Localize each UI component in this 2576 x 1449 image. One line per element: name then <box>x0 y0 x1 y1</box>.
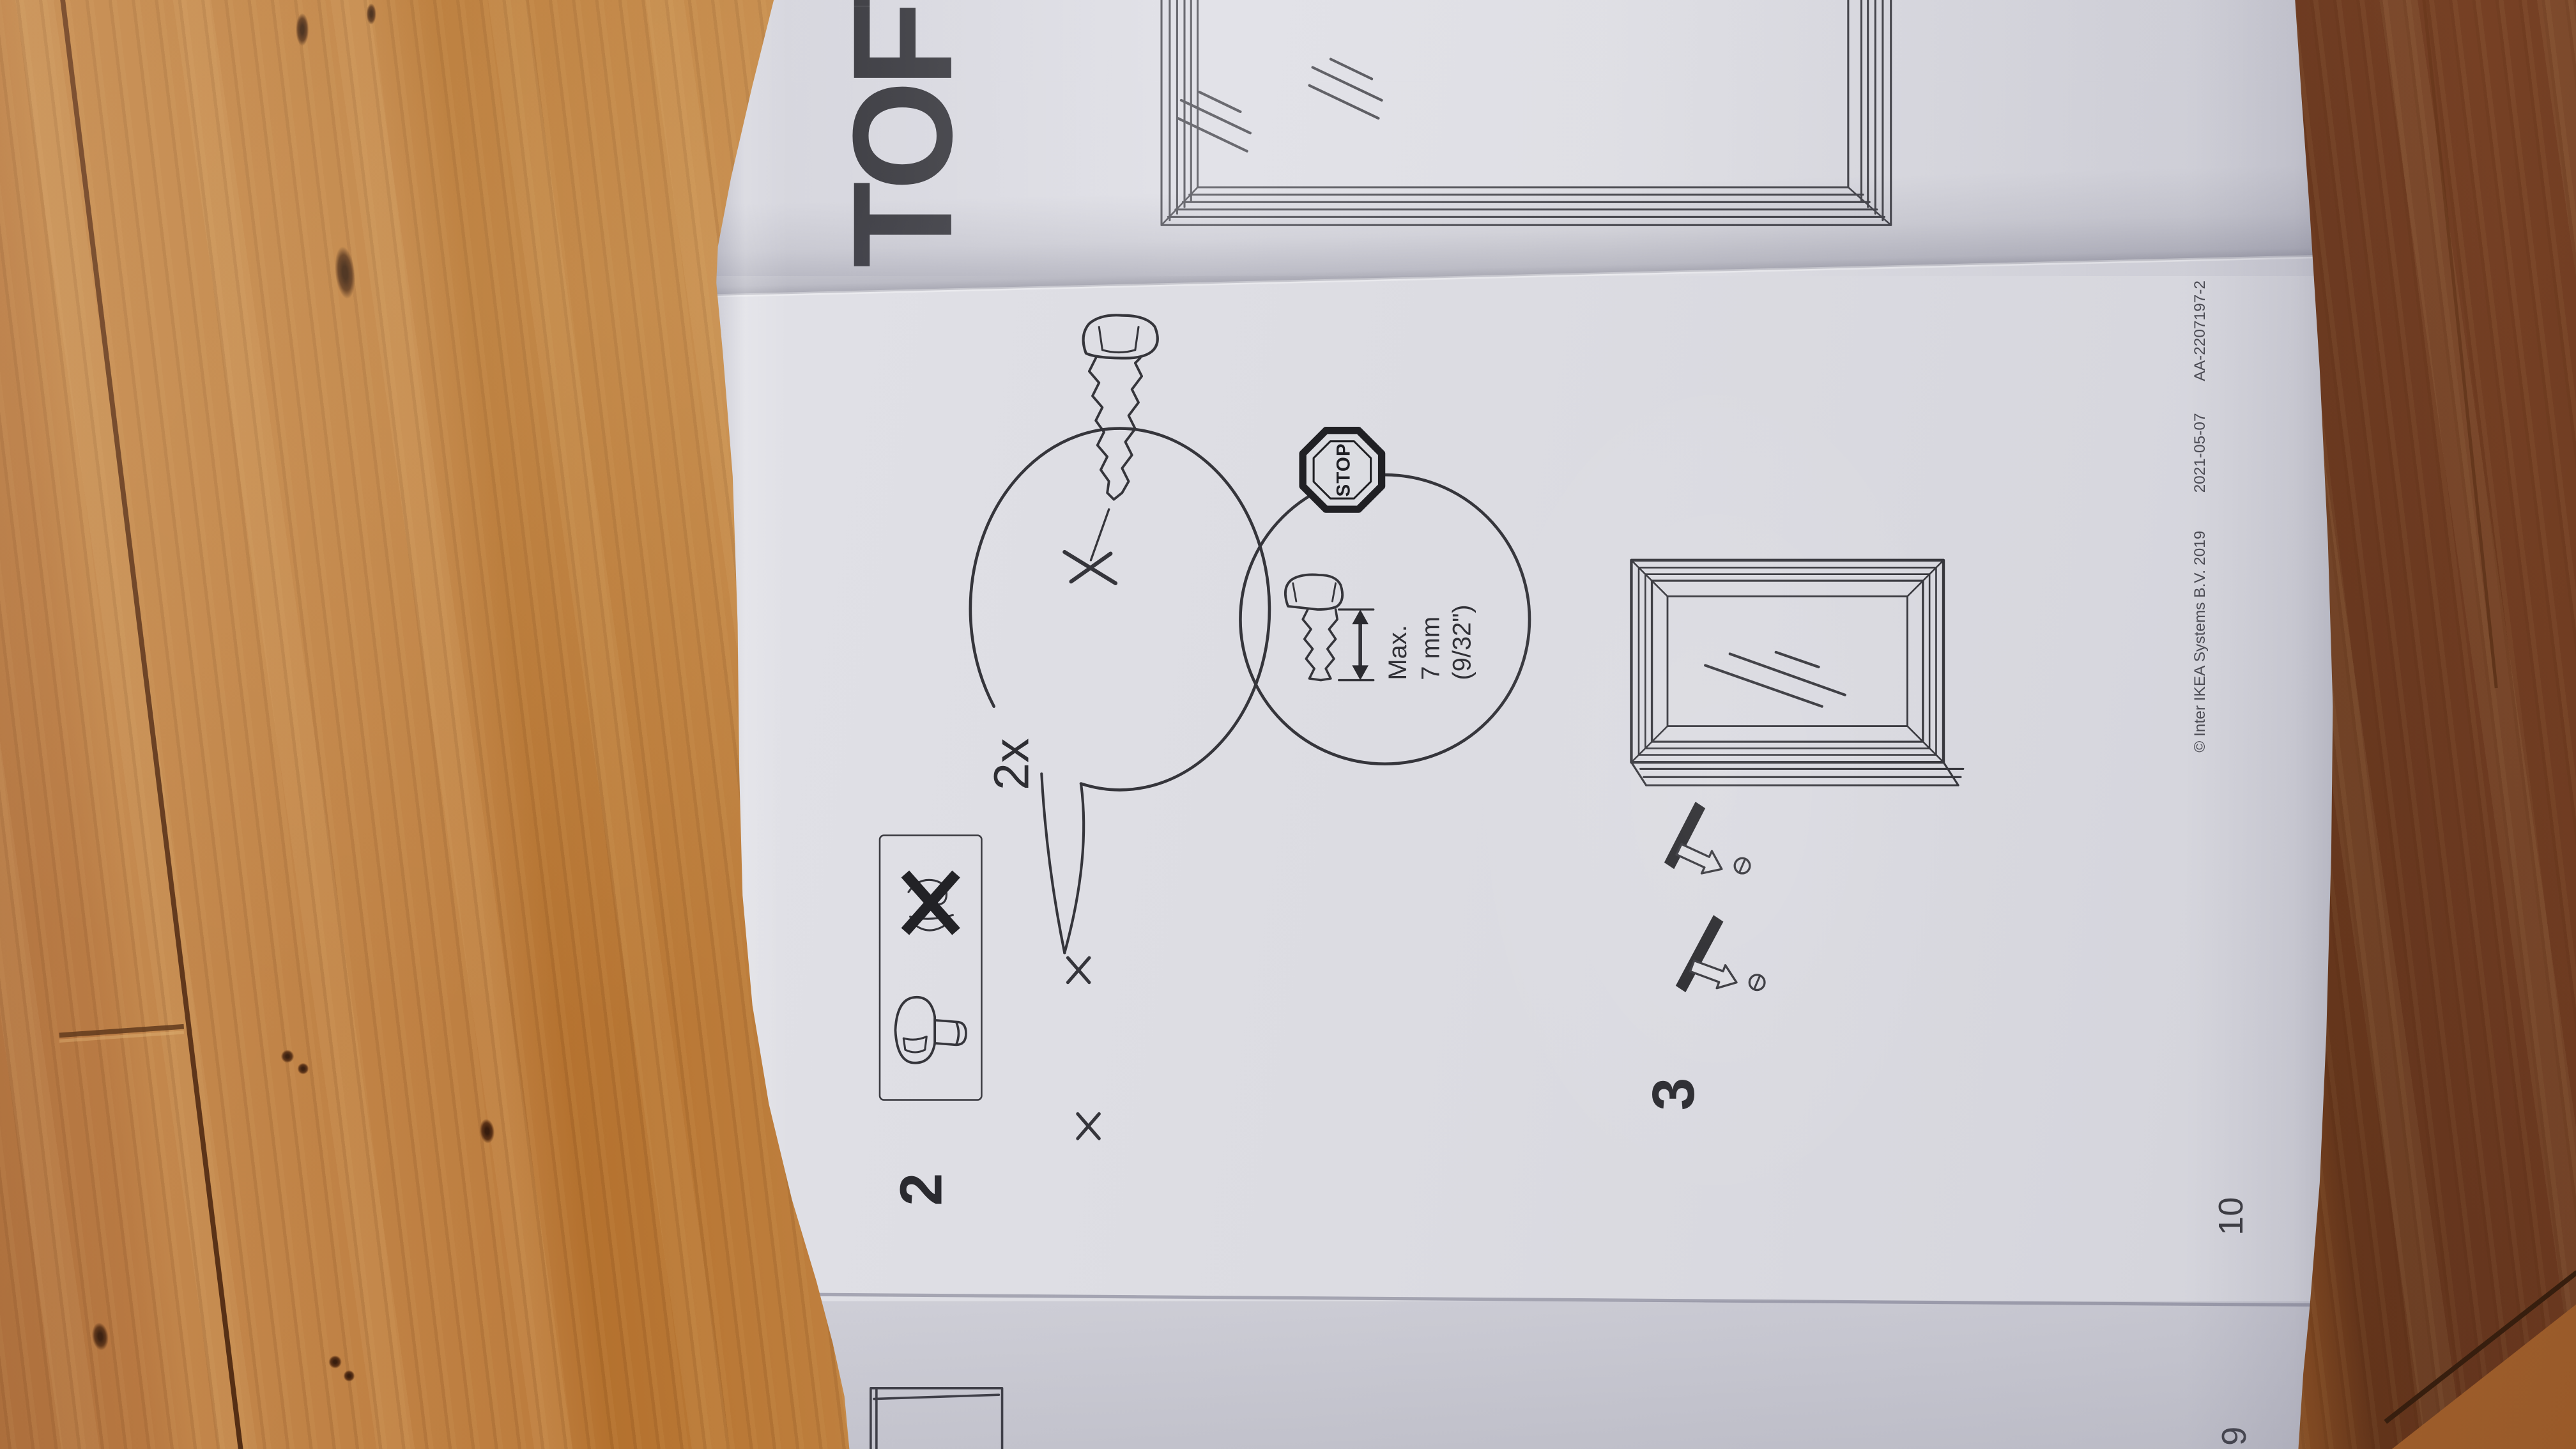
stop-sign-icon: STOP <box>1303 431 1381 509</box>
wood-knot <box>343 1370 355 1382</box>
wood-knot <box>297 1063 309 1075</box>
wood-knot <box>366 3 376 24</box>
wood-knot <box>281 1050 295 1063</box>
back-page-number: 9 <box>2216 1427 2256 1446</box>
step3-diagram <box>1610 529 1988 1022</box>
hang-arrow-icon <box>1676 844 1736 988</box>
glass-reflection-lines <box>1705 652 1845 707</box>
max-depth-line: (9/32") <box>1447 604 1479 680</box>
back-page-illustration <box>854 1370 1018 1449</box>
photo-of-instruction-manual: 9 2 2x <box>0 0 2576 1449</box>
page-number: 10 <box>2213 1197 2253 1236</box>
footer-date: 2021-05-07 <box>2191 413 2209 493</box>
pencil-mark-x <box>1064 509 1115 583</box>
wood-knot <box>296 13 309 46</box>
screw-head-icon <box>1735 858 1765 990</box>
protruding-screw-icon <box>1285 574 1342 680</box>
step2-number: 2 <box>887 1173 956 1206</box>
glass-reflection-lines <box>1178 59 1382 151</box>
depth-arrow-icon <box>1352 609 1368 680</box>
photo-wrapper: 9 2 2x <box>0 0 2576 1449</box>
wall-mark-icon <box>1068 958 1099 1138</box>
magnifier-balloon <box>970 429 1269 953</box>
booklet-pages: 9 2 2x <box>715 0 2317 1449</box>
step3-number: 3 <box>1639 1078 1708 1111</box>
screw-illustration <box>1084 315 1158 499</box>
footer-copyright: © Inter IKEA Systems B.V. 2019 <box>2191 531 2209 753</box>
mirror-frame-illustration <box>1631 560 1963 785</box>
max-depth-line: Max. <box>1383 604 1415 680</box>
footer-document-code: AA-2207197-2 <box>2191 280 2209 381</box>
cover-mirror-illustration <box>1155 0 1897 233</box>
max-depth-label: Max. 7 mm (9/32") <box>1383 604 1479 680</box>
max-depth-line: 7 mm <box>1415 604 1447 680</box>
cover-title: TOFT <box>823 0 986 268</box>
wood-knot <box>328 1355 342 1368</box>
stop-sign-label: STOP <box>1333 443 1354 496</box>
step2-diagram: STOP <box>945 299 1545 1153</box>
